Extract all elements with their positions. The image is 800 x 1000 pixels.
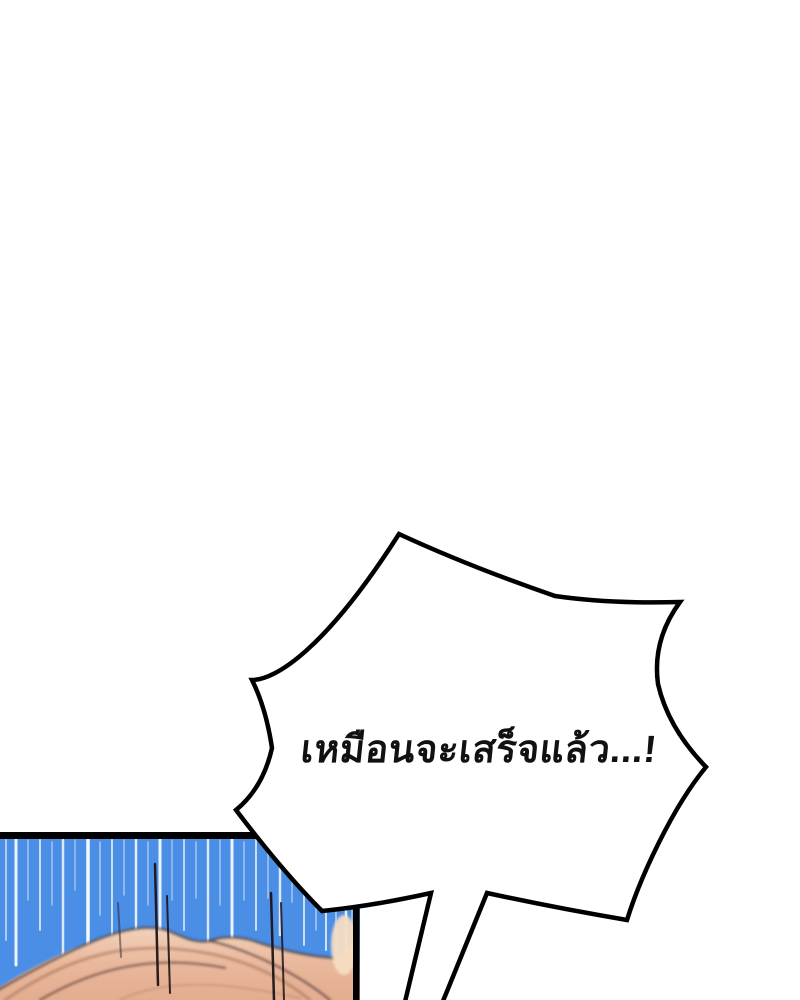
panel-right-border [353,896,360,1000]
comic-page: เหมือนจะเสร็จแล้ว...! [0,0,800,1000]
speech-bubble-text: เหมือนจะเสร็จแล้ว...! [298,718,660,779]
comic-art [0,0,800,1000]
